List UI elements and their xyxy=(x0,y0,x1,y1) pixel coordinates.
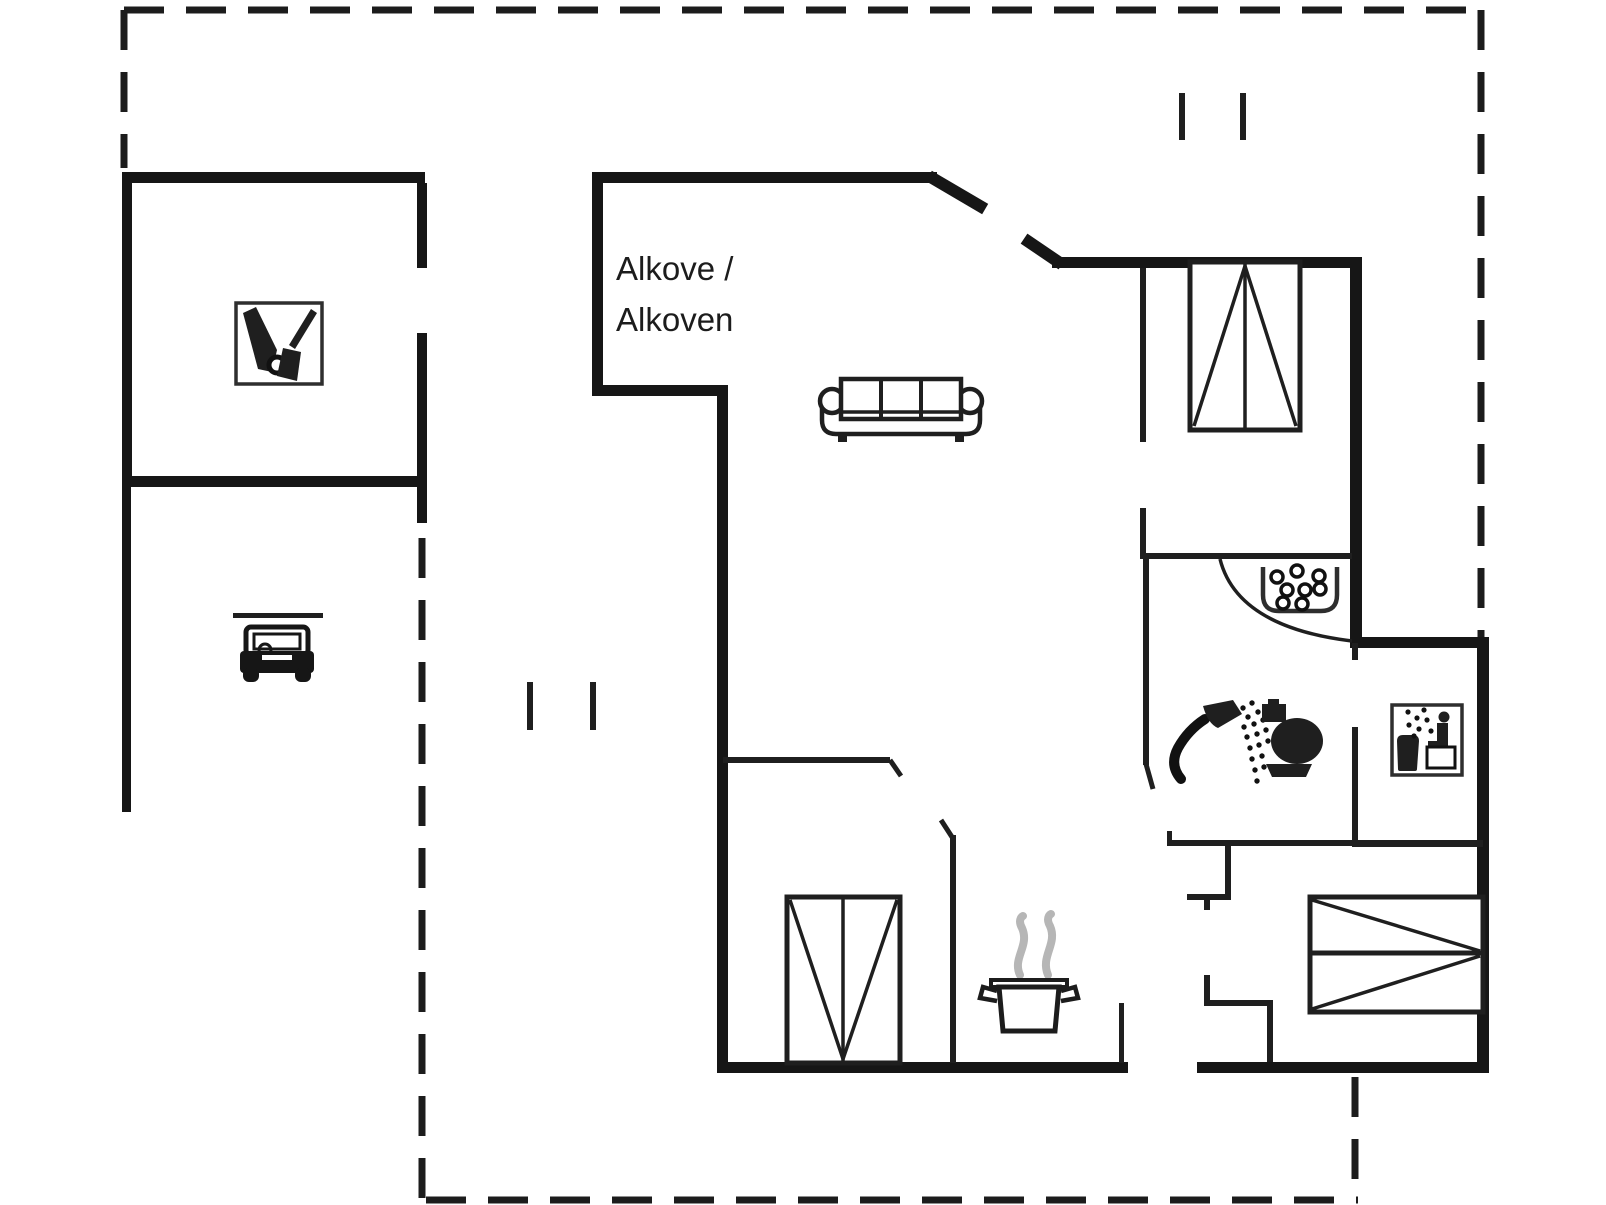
wall-alcove-jog xyxy=(592,385,728,396)
shed-wall-top xyxy=(122,172,425,183)
sauna-person-head xyxy=(1439,712,1450,723)
shed xyxy=(122,172,427,812)
door-end-tick xyxy=(941,820,952,837)
shower-icon xyxy=(1174,700,1271,784)
floor-plan: Alkove / Alkoven xyxy=(0,0,1606,1205)
toilet-icon xyxy=(1262,699,1323,777)
carport xyxy=(233,613,323,682)
shed-wall-right-lower xyxy=(417,333,427,487)
shed-wall-bottom xyxy=(122,476,425,487)
car-body-slot xyxy=(262,655,292,660)
wall-entrance-diagonal-left xyxy=(934,179,980,206)
wall-left-upper xyxy=(592,172,603,393)
wall-right-upper xyxy=(1350,257,1362,643)
wall-bottom-right xyxy=(1197,1062,1489,1073)
car-wheel-right xyxy=(295,668,311,682)
hallway-wall xyxy=(1140,553,1352,559)
wall-sauna-top xyxy=(1350,637,1487,648)
alcove-label-line1: Alkove / xyxy=(616,250,734,287)
carport-wall-left xyxy=(122,487,131,812)
car-icon xyxy=(240,627,314,682)
sauna-icon xyxy=(1392,705,1462,775)
cooking-pot-icon xyxy=(980,914,1078,1031)
bedroom-wall-left-b xyxy=(1140,508,1146,558)
shed-wall-right-upper xyxy=(417,183,427,268)
alcove-label-line2: Alkoven xyxy=(616,301,733,338)
toilet-lid-button xyxy=(1268,699,1279,705)
bedroom-wall-left-a xyxy=(1140,268,1146,442)
door-end-tick xyxy=(890,760,901,776)
sofa-foot xyxy=(838,434,847,442)
sauna-bench xyxy=(1427,747,1455,768)
wardrobe-icon-bedroom xyxy=(1190,262,1300,430)
toilet-base xyxy=(1266,764,1312,777)
pot-handle-right xyxy=(1061,987,1078,1001)
shed-wall-stub xyxy=(417,487,427,523)
sauna-wall-bottom xyxy=(1352,840,1483,847)
closet-wall-c xyxy=(1267,1006,1273,1062)
wall-left-lower xyxy=(717,385,728,1073)
toilet-bowl xyxy=(1271,718,1323,764)
wall-top xyxy=(592,172,937,183)
pot-steam xyxy=(1018,916,1024,975)
pot-steam xyxy=(1046,914,1052,975)
sauna-bucket xyxy=(1397,735,1419,771)
tool-shed-icon xyxy=(236,303,322,384)
shed-wall-left xyxy=(122,172,132,487)
pot-body xyxy=(999,987,1059,1031)
closet-wall-b xyxy=(1204,1000,1273,1006)
bathroom-wall-left xyxy=(1143,559,1149,765)
kitchen-counter-edge xyxy=(1119,1003,1124,1063)
shower-hose xyxy=(1174,719,1205,779)
closet-wall-a xyxy=(1204,975,1210,1003)
washbasin-icon xyxy=(1263,565,1337,611)
sofa-icon xyxy=(820,379,982,442)
room-label-alcove: Alkove / Alkoven xyxy=(616,250,734,338)
pot-handle-left xyxy=(980,987,997,1001)
sofa-foot xyxy=(955,434,964,442)
kitchen-wall-vertical xyxy=(950,835,956,1063)
livingroom-wall-horizontal xyxy=(723,757,890,763)
sauna-wall-left-a xyxy=(1352,643,1358,660)
carport-roof-line xyxy=(233,613,323,618)
door-end-tick xyxy=(1146,764,1153,789)
vestibule-wall-vertical xyxy=(1225,846,1231,897)
toilet-tank xyxy=(1262,704,1286,722)
wall-bottom-left xyxy=(717,1062,1128,1073)
shower-head xyxy=(1203,700,1242,728)
bunk-bed-icon xyxy=(1310,897,1483,1012)
vestibule-wall-horizontal xyxy=(1187,894,1231,900)
vestibule-door-tick xyxy=(1204,900,1210,910)
bathroom-wall-bottom xyxy=(1167,840,1360,846)
car-wheel-left xyxy=(243,668,259,682)
sauna-wall-left-b xyxy=(1352,727,1358,843)
wardrobe-icon-lower xyxy=(787,897,900,1063)
